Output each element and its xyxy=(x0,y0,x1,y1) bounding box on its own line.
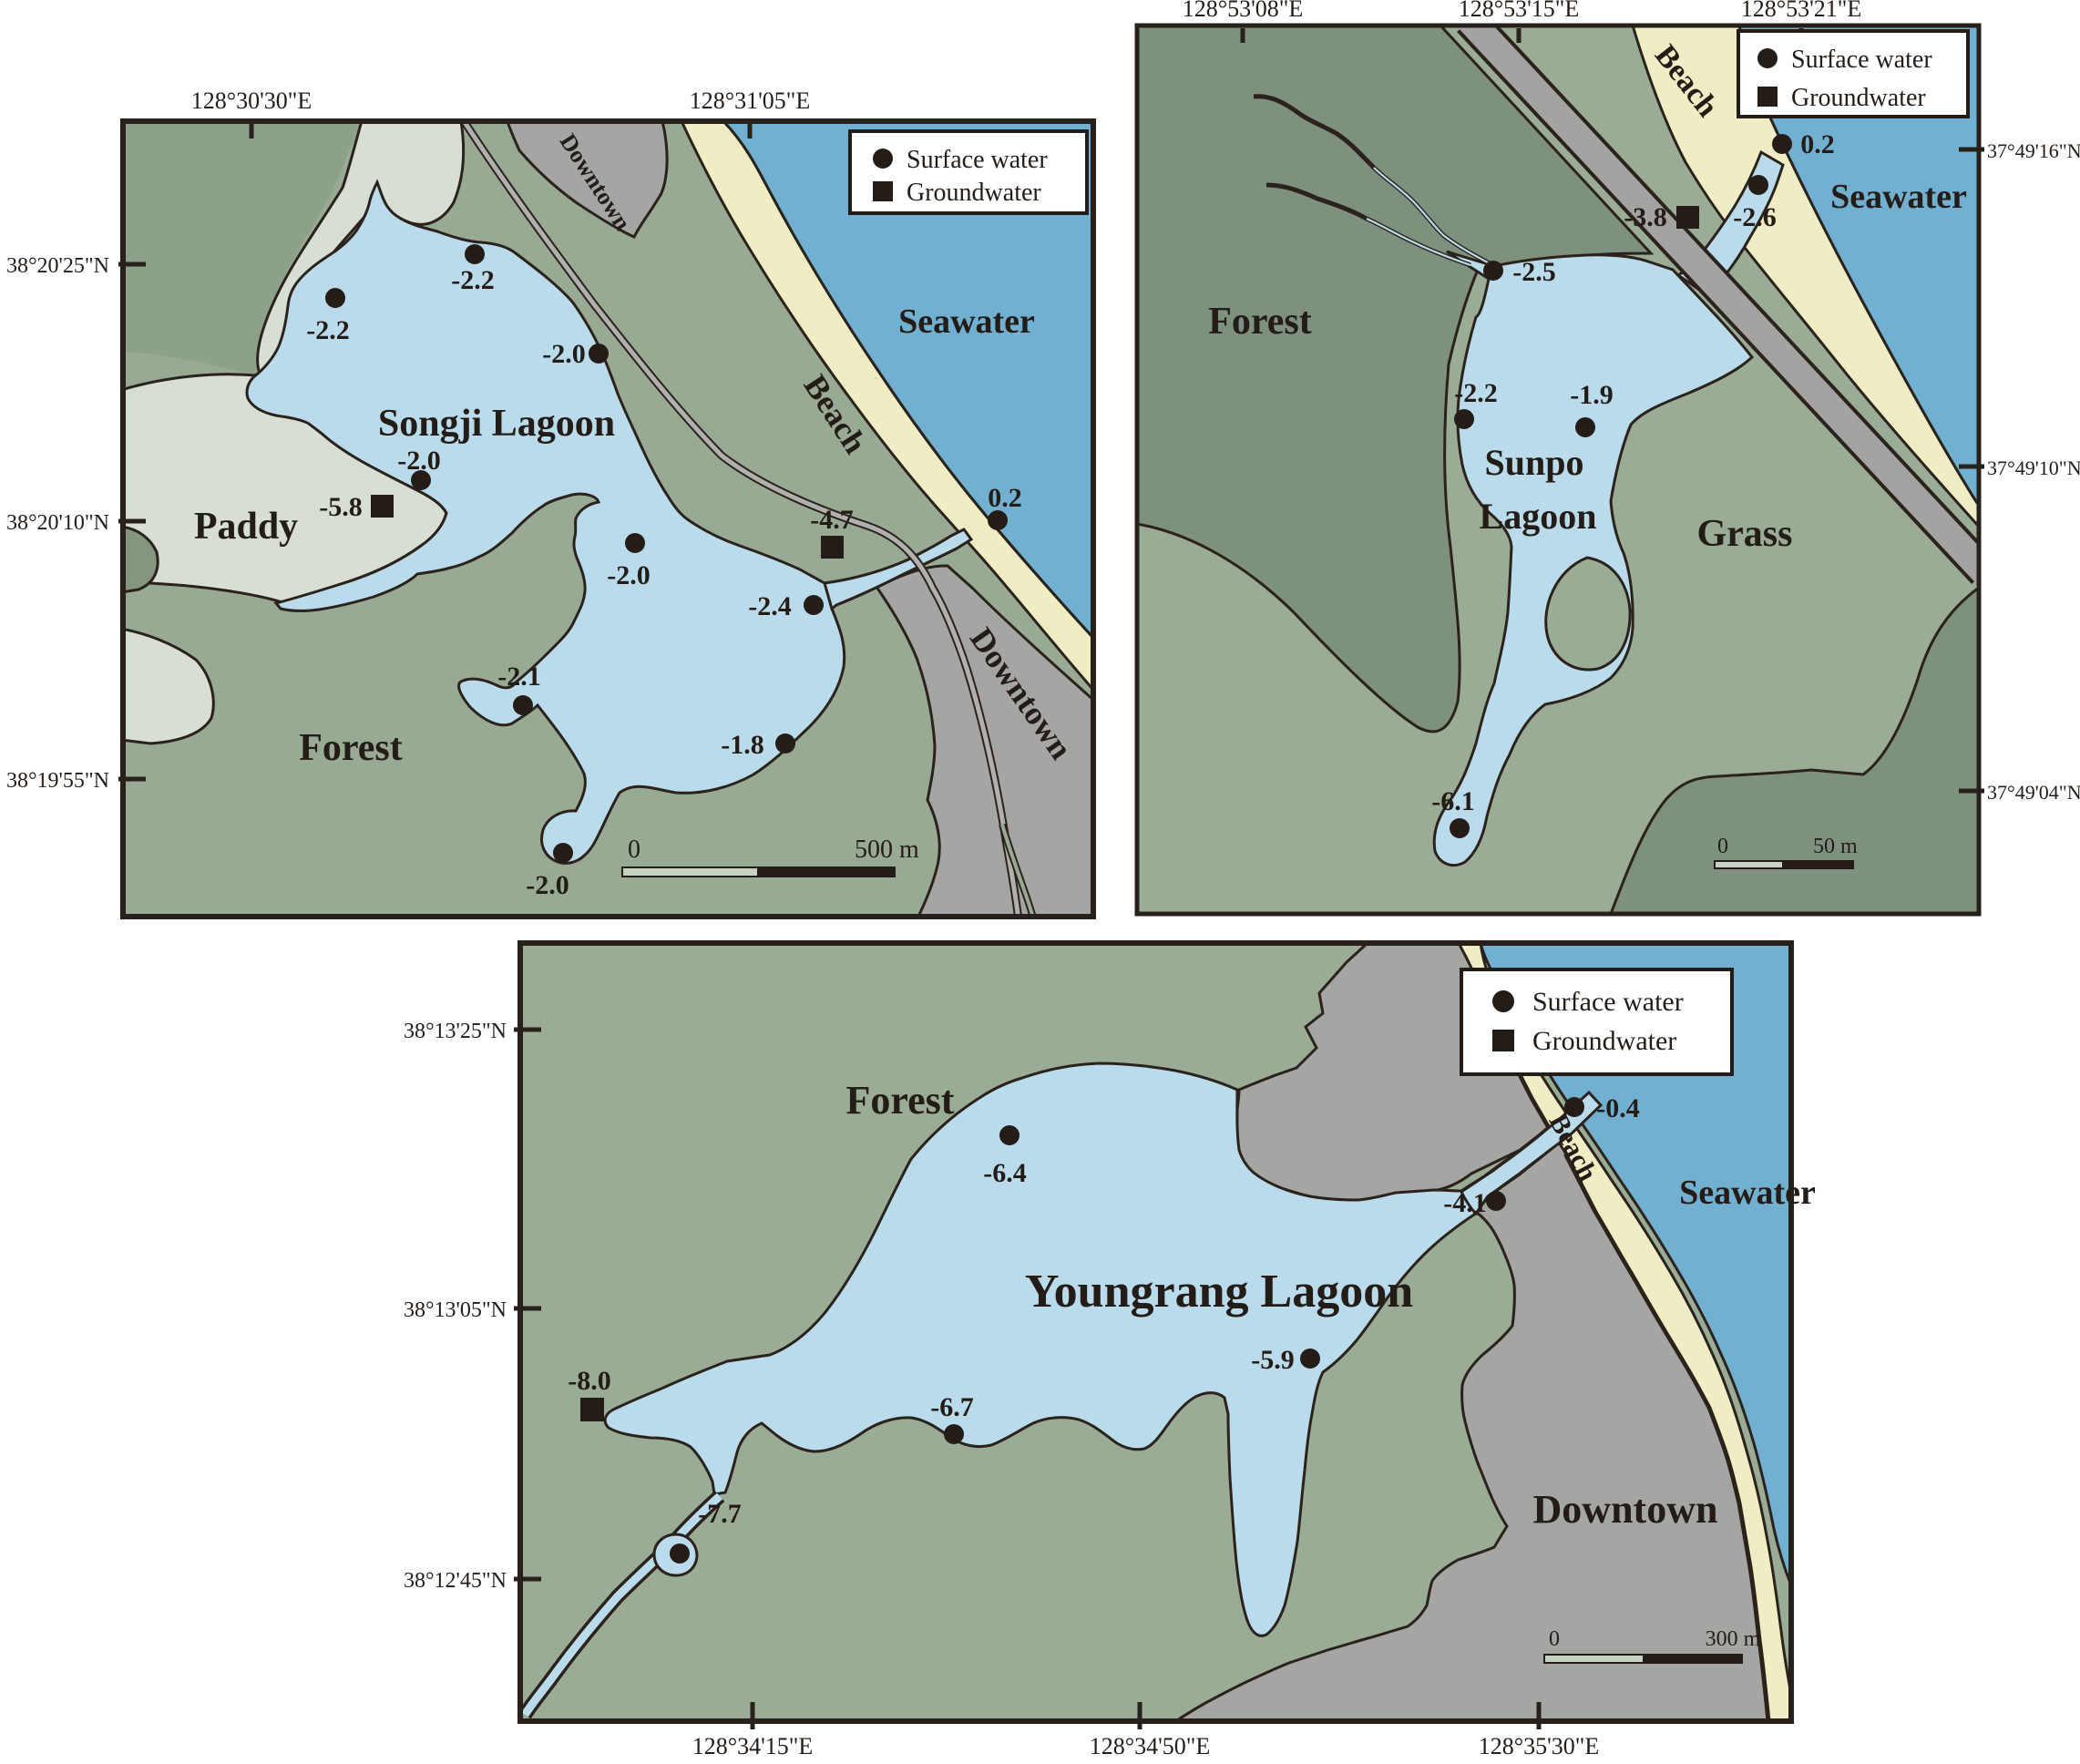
svg-text:Seawater: Seawater xyxy=(1679,1174,1816,1212)
svg-text:-6.4: -6.4 xyxy=(983,1158,1027,1188)
svg-text:-0.4: -0.4 xyxy=(1596,1093,1640,1123)
svg-text:Surface water: Surface water xyxy=(1532,987,1684,1017)
svg-text:-2.4: -2.4 xyxy=(748,591,792,621)
svg-text:-6.7: -6.7 xyxy=(930,1392,974,1422)
svg-text:-5.8: -5.8 xyxy=(319,492,363,522)
svg-text:0.2: 0.2 xyxy=(1800,129,1835,159)
svg-text:Youngrang Lagoon: Youngrang Lagoon xyxy=(1025,1266,1413,1318)
svg-text:-2.6: -2.6 xyxy=(1733,202,1777,232)
svg-text:-2.0: -2.0 xyxy=(397,446,441,476)
svg-text:-2.0: -2.0 xyxy=(542,339,586,369)
svg-text:128°31'05"E: 128°31'05"E xyxy=(690,87,811,114)
svg-text:128°34'50"E: 128°34'50"E xyxy=(1090,1733,1211,1759)
svg-text:38°20'10"N: 38°20'10"N xyxy=(6,511,109,535)
svg-text:38°12'45"N: 38°12'45"N xyxy=(404,1569,507,1593)
svg-text:128°53'08"E: 128°53'08"E xyxy=(1183,0,1304,22)
svg-text:128°53'21"E: 128°53'21"E xyxy=(1741,0,1862,22)
svg-text:-1.8: -1.8 xyxy=(721,730,764,760)
svg-text:-4.7: -4.7 xyxy=(810,505,854,535)
svg-text:Lagoon: Lagoon xyxy=(1480,496,1597,537)
svg-text:Forest: Forest xyxy=(846,1078,955,1123)
svg-text:0: 0 xyxy=(628,836,640,864)
svg-text:128°30'30"E: 128°30'30"E xyxy=(191,87,313,114)
svg-text:50 m: 50 m xyxy=(1813,835,1858,858)
svg-text:-6.1: -6.1 xyxy=(1431,786,1475,816)
svg-text:0: 0 xyxy=(1549,1627,1560,1651)
svg-text:38°20'25"N: 38°20'25"N xyxy=(6,254,109,278)
svg-text:Forest: Forest xyxy=(299,727,403,769)
svg-text:Downtown: Downtown xyxy=(1533,1487,1718,1532)
svg-text:38°13'25"N: 38°13'25"N xyxy=(404,1020,507,1043)
svg-text:Groundwater: Groundwater xyxy=(1532,1026,1676,1056)
svg-text:500 m: 500 m xyxy=(855,836,919,864)
svg-text:Groundwater: Groundwater xyxy=(1791,84,1926,112)
svg-text:Forest: Forest xyxy=(1208,301,1312,343)
svg-text:-2.5: -2.5 xyxy=(1512,257,1556,287)
svg-text:Grass: Grass xyxy=(1697,513,1793,555)
svg-text:-2.2: -2.2 xyxy=(1454,378,1498,408)
svg-text:37°49'16"N: 37°49'16"N xyxy=(1987,139,2080,162)
svg-text:-2.1: -2.1 xyxy=(497,661,541,692)
svg-text:Paddy: Paddy xyxy=(194,506,298,548)
svg-text:-2.0: -2.0 xyxy=(607,560,651,590)
svg-text:-8.0: -8.0 xyxy=(568,1366,611,1396)
svg-text:128°53'15"E: 128°53'15"E xyxy=(1459,0,1580,22)
svg-text:37°49'04"N: 37°49'04"N xyxy=(1987,781,2080,804)
svg-text:128°35'30"E: 128°35'30"E xyxy=(1479,1733,1600,1759)
svg-text:300 m: 300 m xyxy=(1706,1627,1761,1651)
svg-text:-7.7: -7.7 xyxy=(698,1499,742,1529)
svg-text:-5.9: -5.9 xyxy=(1251,1345,1295,1375)
svg-text:38°19'55"N: 38°19'55"N xyxy=(6,769,109,793)
svg-text:0: 0 xyxy=(1717,835,1728,858)
svg-text:128°34'15"E: 128°34'15"E xyxy=(692,1733,814,1759)
svg-text:-2.2: -2.2 xyxy=(306,315,350,345)
svg-text:Seawater: Seawater xyxy=(898,303,1035,341)
svg-text:Groundwater: Groundwater xyxy=(907,179,1041,207)
svg-text:Songji Lagoon: Songji Lagoon xyxy=(378,403,615,445)
svg-text:-2.0: -2.0 xyxy=(526,870,569,900)
svg-text:Surface water: Surface water xyxy=(1791,46,1932,74)
svg-text:Sunpo: Sunpo xyxy=(1485,442,1584,483)
svg-text:-1.9: -1.9 xyxy=(1570,380,1614,410)
svg-text:-3.8: -3.8 xyxy=(1624,202,1667,232)
svg-text:Surface water: Surface water xyxy=(907,146,1048,174)
svg-text:38°13'05"N: 38°13'05"N xyxy=(404,1298,507,1322)
svg-text:Seawater: Seawater xyxy=(1830,178,1967,216)
svg-text:0.2: 0.2 xyxy=(988,483,1022,513)
svg-text:-2.2: -2.2 xyxy=(451,265,495,295)
svg-text:-4.1: -4.1 xyxy=(1443,1188,1487,1218)
svg-text:37°49'10"N: 37°49'10"N xyxy=(1987,456,2080,479)
